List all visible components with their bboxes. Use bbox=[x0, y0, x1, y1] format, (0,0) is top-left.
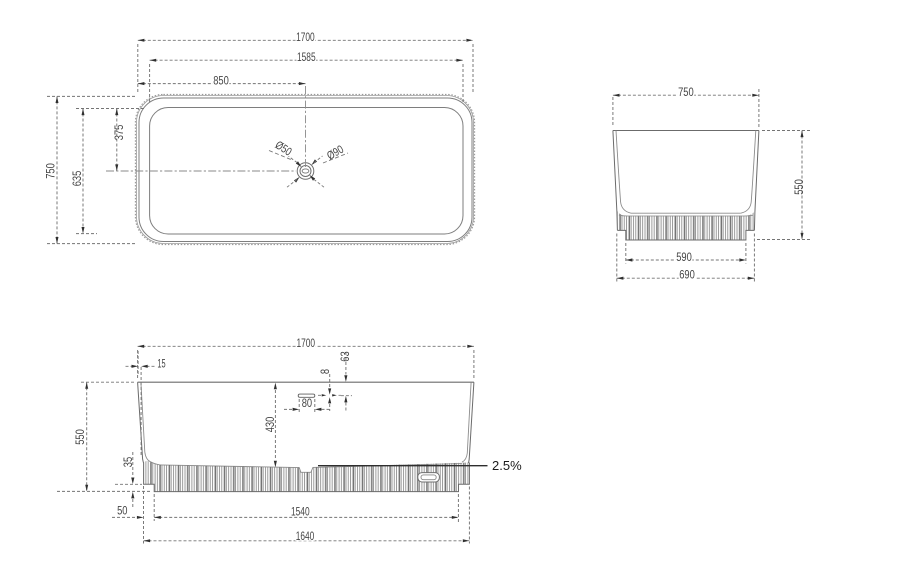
svg-text:550: 550 bbox=[794, 179, 806, 195]
svg-text:590: 590 bbox=[676, 252, 692, 264]
svg-text:690: 690 bbox=[679, 270, 695, 282]
svg-text:1700: 1700 bbox=[296, 32, 315, 44]
svg-text:1585: 1585 bbox=[297, 52, 316, 64]
svg-text:430: 430 bbox=[265, 417, 277, 433]
svg-text:2.5%: 2.5% bbox=[492, 458, 522, 473]
svg-text:850: 850 bbox=[213, 76, 229, 88]
svg-text:80: 80 bbox=[302, 398, 312, 410]
svg-text:635: 635 bbox=[72, 171, 84, 187]
svg-text:750: 750 bbox=[45, 163, 57, 179]
svg-text:15: 15 bbox=[157, 359, 165, 371]
svg-text:550: 550 bbox=[75, 429, 87, 445]
svg-text:1640: 1640 bbox=[296, 531, 315, 543]
svg-text:1700: 1700 bbox=[296, 338, 315, 350]
svg-text:375: 375 bbox=[114, 125, 126, 141]
svg-text:63: 63 bbox=[340, 351, 352, 361]
svg-text:50: 50 bbox=[117, 506, 127, 518]
svg-text:750: 750 bbox=[678, 87, 694, 99]
svg-text:1540: 1540 bbox=[291, 506, 310, 518]
svg-text:8: 8 bbox=[320, 369, 332, 374]
svg-text:35: 35 bbox=[123, 457, 135, 467]
